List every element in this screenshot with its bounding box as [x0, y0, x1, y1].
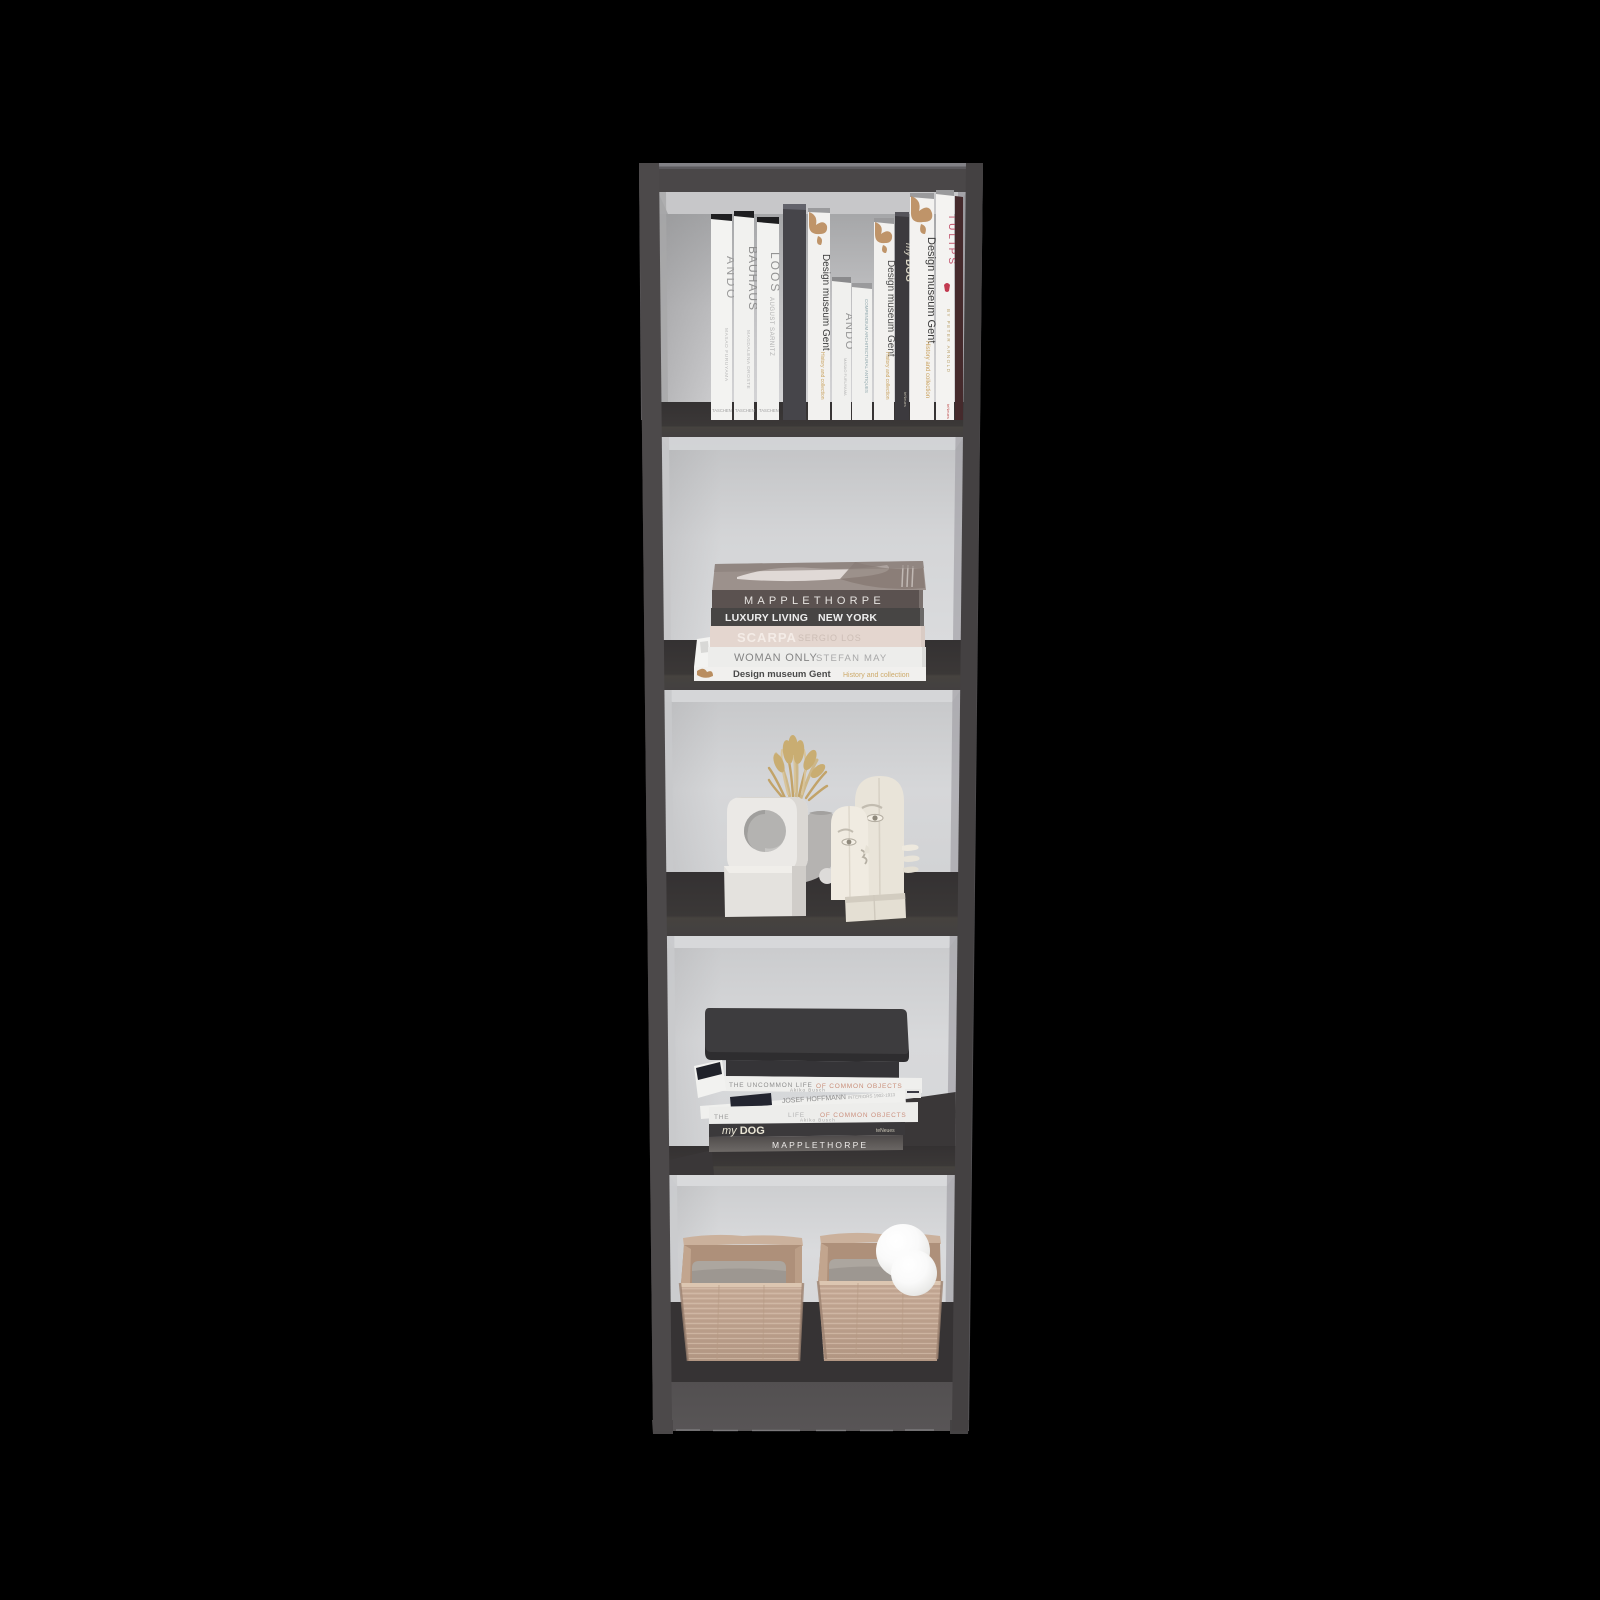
svg-text:History and collection: History and collection — [843, 672, 910, 679]
svg-text:Design museum Gent: Design museum Gent — [925, 237, 937, 343]
svg-text:STEFAN MAY: STEFAN MAY — [816, 653, 887, 664]
svg-text:TASCHEN: TASCHEN — [735, 408, 755, 413]
svg-text:teNeues: teNeues — [903, 392, 908, 407]
svg-text:NEW YORK: NEW YORK — [818, 612, 877, 624]
svg-text:BY PETER ARNOLD: BY PETER ARNOLD — [946, 309, 951, 373]
svg-text:LUXURY LIVING: LUXURY LIVING — [725, 612, 808, 624]
svg-text:MASAO FURUYAMA: MASAO FURUYAMA — [723, 328, 729, 382]
svg-text:Design museum Gent: Design museum Gent — [885, 260, 896, 357]
svg-text:SCARPA: SCARPA — [737, 630, 797, 645]
svg-text:my DOG: my DOG — [722, 1125, 765, 1137]
svg-text:Akiko Busch: Akiko Busch — [790, 1088, 826, 1093]
svg-text:THE: THE — [714, 1114, 729, 1121]
svg-text:History and collection: History and collection — [884, 352, 890, 400]
svg-text:MASAO FURUYAMA: MASAO FURUYAMA — [843, 358, 848, 396]
svg-text:TASCHEN: TASCHEN — [712, 408, 732, 413]
svg-text:LOOS: LOOS — [768, 252, 782, 293]
svg-text:MAPPLETHORPE: MAPPLETHORPE — [744, 595, 885, 607]
svg-text:TASCHEN: TASCHEN — [759, 408, 779, 413]
svg-text:Design museum Gent: Design museum Gent — [820, 254, 831, 351]
svg-text:MAPPLETHORPE: MAPPLETHORPE — [772, 1140, 868, 1150]
svg-text:Design museum Gent: Design museum Gent — [733, 669, 831, 680]
svg-text:Akiko Busch: Akiko Busch — [800, 1118, 836, 1123]
svg-text:MAGDALENA DROSTE: MAGDALENA DROSTE — [745, 330, 751, 389]
svg-text:COMPENDIUM ARCHITECTURAL ANTIQ: COMPENDIUM ARCHITECTURAL ANTIQUES — [864, 299, 869, 393]
svg-text:History and collection: History and collection — [819, 352, 825, 400]
svg-text:teNeues: teNeues — [876, 1128, 895, 1134]
svg-text:AUGUST SARNITZ: AUGUST SARNITZ — [768, 297, 774, 356]
svg-text:WOMAN ONLY: WOMAN ONLY — [734, 652, 818, 664]
svg-text:History and collection: History and collection — [924, 341, 930, 398]
svg-text:teNeues: teNeues — [946, 404, 951, 419]
svg-text:OF COMMON OBJECTS: OF COMMON OBJECTS — [816, 1083, 903, 1090]
svg-text:SERGIO LOS: SERGIO LOS — [798, 633, 862, 643]
